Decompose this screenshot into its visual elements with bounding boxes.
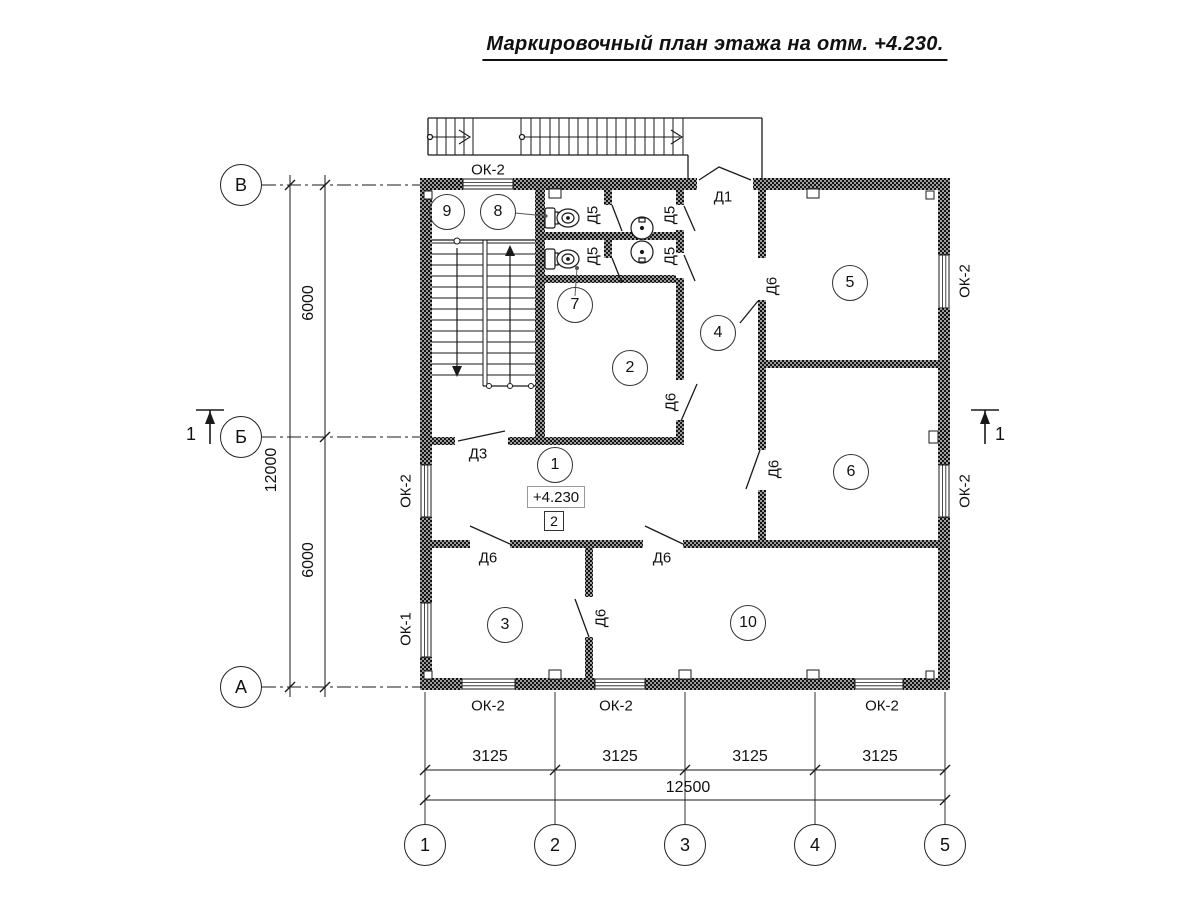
- washbasin-lower: [631, 241, 653, 263]
- window-ok2-right-upper: [939, 255, 949, 308]
- window-ok2-left: [421, 465, 431, 517]
- dim-ticks-left: [285, 180, 330, 692]
- section-label-right: 1: [995, 425, 1005, 443]
- room-circle-2: 2: [612, 350, 648, 386]
- window-ok2-bottom-2: [595, 679, 645, 689]
- room-circle-3: 3: [487, 607, 523, 643]
- dim-label-12000: 12000: [264, 448, 280, 493]
- door-d6-hall-left-swing: [470, 526, 510, 544]
- axis-circle-5: 5: [924, 824, 966, 866]
- room-circle-10: 10: [730, 605, 766, 641]
- washbasin-upper: [631, 217, 653, 239]
- axis-circle-2: 2: [534, 824, 576, 866]
- door-d6-corridor-swing: [740, 301, 758, 323]
- room-circle-4: 4: [700, 315, 736, 351]
- window-ok1-left: [421, 603, 431, 657]
- door-d6-hall-right-swing: [645, 526, 683, 544]
- window-ok2-top: [463, 179, 513, 189]
- stair-up-arrow: [505, 245, 515, 256]
- dim-label-12500: 12500: [666, 780, 711, 796]
- door-label-d6-hall-left: Д6: [479, 551, 498, 566]
- section-label-left: 1: [186, 425, 196, 443]
- door-d1-swing: [699, 167, 751, 180]
- toilet-lower: [545, 249, 579, 269]
- zone-mark: 2: [544, 511, 564, 531]
- axis-circle-a: А: [220, 666, 262, 708]
- door-label-d5-3: Д5: [586, 247, 601, 266]
- window-label-ok2-top: ОК-2: [471, 163, 505, 178]
- window-label-ok2-bottom-3: ОК-2: [865, 699, 899, 714]
- dim-label-3125-3: 3125: [732, 749, 768, 765]
- dim-label-3125-2: 3125: [602, 749, 638, 765]
- axis-circle-4: 4: [794, 824, 836, 866]
- interior-stair: [432, 238, 535, 389]
- door-label-d6-corridor: Д6: [765, 277, 780, 296]
- elevation-mark: +4.230: [527, 486, 585, 508]
- door-label-d6-room3-10: Д6: [594, 609, 609, 628]
- door-label-d6-room6: Д6: [767, 460, 782, 479]
- dim-label-3125-4: 3125: [862, 749, 898, 765]
- room-circle-5: 5: [832, 265, 868, 301]
- window-ok2-bottom-1: [462, 679, 515, 689]
- door-label-d5-2: Д5: [663, 206, 678, 225]
- axis-circle-3: 3: [664, 824, 706, 866]
- door-d6-room3-10-swing: [575, 599, 589, 637]
- floor-plan-drawing: [0, 0, 1200, 900]
- dim-label-3125-1: 3125: [472, 749, 508, 765]
- door-label-d1: Д1: [714, 190, 733, 205]
- window-label-ok2-right-upper: ОК-2: [958, 264, 973, 298]
- window-label-ok2-bottom-1: ОК-2: [471, 699, 505, 714]
- door-label-d3: Д3: [469, 447, 488, 462]
- door-label-d5-1: Д5: [586, 206, 601, 225]
- drawing-title: Маркировочный план этажа на отм. +4.230.: [482, 33, 947, 61]
- toilet-upper: [545, 208, 579, 228]
- door-d6-room6-swing: [746, 450, 760, 489]
- axis-circle-v: В: [220, 164, 262, 206]
- room-circle-6: 6: [833, 454, 869, 490]
- dim-label-6000-upper: 6000: [301, 285, 317, 321]
- dim-label-6000-lower: 6000: [301, 542, 317, 578]
- door-label-d5-4: Д5: [663, 247, 678, 266]
- door-d5-2-swing: [684, 206, 695, 231]
- room-circle-1: 1: [537, 447, 573, 483]
- door-d6-room2-swing: [681, 384, 697, 421]
- window-label-ok2-bottom-2: ОК-2: [599, 699, 633, 714]
- window-label-ok2-right-lower: ОК-2: [958, 474, 973, 508]
- door-d3-swing: [458, 431, 505, 441]
- window-ok2-right-lower: [939, 465, 949, 517]
- door-d5-4-swing: [684, 255, 695, 281]
- window-ok2-bottom-3: [855, 679, 903, 689]
- window-label-ok2-left: ОК-2: [399, 474, 414, 508]
- door-label-d6-room2: Д6: [664, 393, 679, 412]
- room-circle-7: 7: [557, 287, 593, 323]
- floor-plan-page: Маркировочный план этажа на отм. +4.230.…: [0, 0, 1200, 900]
- room-circle-9: 9: [429, 194, 465, 230]
- door-label-d6-hall-right: Д6: [653, 551, 672, 566]
- door-d5-1-swing: [612, 205, 622, 231]
- window-label-ok1-left: ОК-1: [399, 612, 414, 646]
- axis-circle-1: 1: [404, 824, 446, 866]
- axis-circle-b: Б: [220, 416, 262, 458]
- room-circle-8: 8: [480, 194, 516, 230]
